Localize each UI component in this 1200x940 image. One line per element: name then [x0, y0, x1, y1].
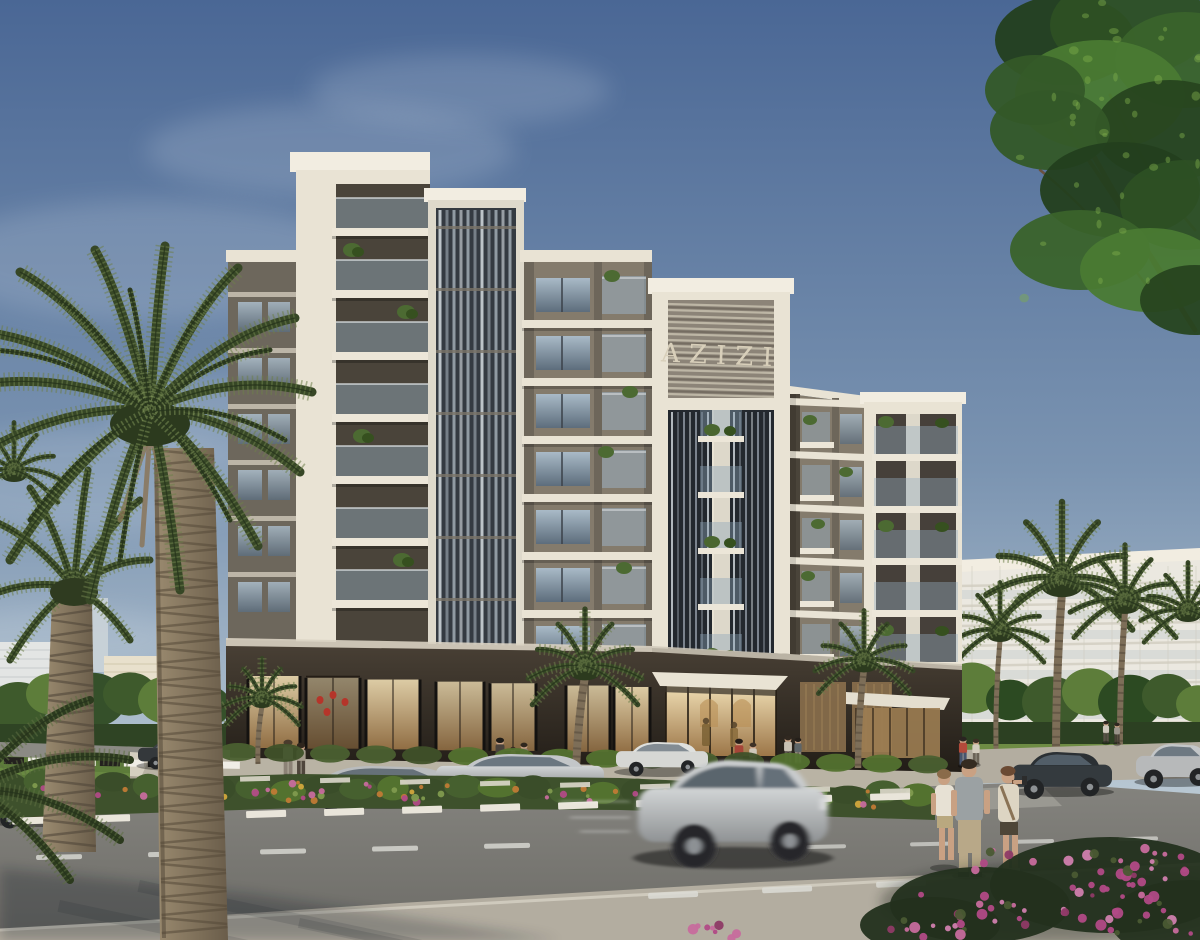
pedestrian-torso [955, 777, 983, 822]
arch-motif [700, 699, 718, 727]
leaf-highlight [1132, 111, 1137, 118]
pedestrian-torso [959, 743, 967, 753]
leaf-highlight [1040, 241, 1046, 245]
leaf-highlight [1149, 164, 1158, 171]
flower-dot [1000, 900, 1005, 905]
car-hub [685, 765, 690, 770]
bg-glass-row [958, 650, 1200, 659]
flower-dot [901, 917, 908, 924]
flower-dot [1163, 876, 1168, 881]
flower-dot [1138, 892, 1145, 899]
flower-dot [1149, 866, 1154, 871]
red-lantern [324, 708, 331, 716]
leaf-highlight [1158, 35, 1164, 40]
leaf-highlight [1112, 36, 1121, 43]
red-lantern [317, 696, 324, 704]
flower-dot [1088, 882, 1094, 888]
pedestrian-hair [1001, 766, 1016, 776]
flower-dot [1090, 893, 1094, 897]
flower-dot [1061, 908, 1069, 916]
lane-dash [806, 844, 846, 849]
curb-stone [880, 788, 910, 794]
flower-dot [1157, 901, 1162, 906]
flower-dot [1112, 908, 1119, 915]
balcony-plant [352, 247, 364, 257]
balcony-glass [700, 578, 742, 604]
cloud [310, 54, 610, 126]
window-pane [268, 582, 290, 612]
flower-dot [871, 804, 876, 809]
balcony-slab [872, 610, 962, 617]
curb-stone [400, 779, 430, 785]
building-logo-band: AZIZI [660, 338, 783, 373]
leaf-highlight [1179, 133, 1184, 138]
balcony-slab [872, 454, 962, 461]
car-hub [634, 766, 639, 771]
flower-dot [251, 789, 259, 797]
red-lantern [330, 691, 337, 699]
flower-dot [955, 929, 966, 940]
flower-dot [286, 797, 292, 803]
flower-dot [1029, 858, 1037, 866]
flower-dot [1070, 884, 1076, 890]
pedestrian-arm [931, 793, 936, 815]
balcony-plant [704, 424, 720, 436]
pedestrian-arm [984, 790, 990, 814]
flower-dot [986, 848, 995, 857]
balcony-slab [800, 495, 834, 501]
car-headlight [820, 798, 828, 810]
flower-dot [1180, 867, 1189, 876]
balcony-slab-shadow [332, 360, 432, 363]
flower-dot [548, 789, 553, 794]
flower-dot [560, 791, 567, 798]
balcony-slab [332, 476, 432, 484]
base-shrub [816, 754, 856, 772]
window-pane [840, 520, 862, 550]
balcony-glass [700, 466, 742, 492]
window-pane [238, 582, 262, 612]
balcony-glass [602, 508, 646, 546]
car-hub [1087, 784, 1093, 790]
flower-dot [971, 866, 979, 874]
base-shrub [310, 745, 350, 763]
balcony-slab-shadow [332, 422, 432, 425]
balcony-plant [811, 519, 825, 529]
balcony-slab-shadow [332, 608, 432, 611]
leaf-highlight [1085, 76, 1091, 84]
flower-dot [1118, 858, 1123, 863]
balcony-glass [336, 198, 428, 228]
leaf-highlight [1123, 152, 1130, 158]
leaf-highlight [1082, 13, 1089, 18]
curb-stone [480, 803, 520, 811]
flower-dot [710, 926, 715, 931]
base-shrub [402, 746, 442, 764]
curb-stone [246, 810, 286, 818]
flower-dot [265, 788, 270, 793]
flower-dot [368, 785, 372, 789]
fin-floor-break [436, 536, 516, 539]
balcony-glass [602, 334, 646, 372]
balcony-slab-shadow [332, 484, 432, 487]
curb-stone [560, 782, 590, 788]
fin-column-cap [424, 188, 526, 202]
storefront-glass [856, 708, 940, 758]
balcony-slab-shadow [332, 236, 432, 239]
base-shrub [862, 755, 902, 773]
balcony-glass [802, 465, 830, 497]
slab-line [228, 572, 296, 577]
pedestrian-hair [520, 743, 527, 748]
base-shrub [356, 745, 396, 763]
curb-stone [870, 793, 910, 801]
leaf-highlight [1163, 27, 1167, 32]
lane-dash [260, 848, 306, 854]
flower-dot [918, 892, 924, 898]
flower-dot [1063, 856, 1073, 866]
window-pane [840, 414, 862, 444]
slab-shadow [522, 502, 652, 505]
pedestrian-leg [939, 828, 945, 860]
balcony-slab [872, 558, 962, 565]
balcony-plant [598, 446, 614, 458]
pedestrian-hair [735, 739, 743, 744]
car-hub [686, 838, 702, 854]
curb-stone [402, 806, 442, 814]
balcony-plant [616, 562, 632, 574]
flower-dot [909, 922, 920, 933]
architectural-rendering: AZIZI [0, 0, 1200, 940]
window-pane [268, 526, 290, 556]
leaf-highlight [1146, 277, 1150, 284]
flower-dot [980, 859, 988, 867]
leaf-highlight [1052, 93, 1057, 102]
flower-dot [866, 789, 870, 793]
pedestrian-torso [784, 742, 792, 752]
flower-dot [1090, 849, 1099, 858]
flower-dot [1004, 850, 1013, 859]
window-pane [536, 278, 590, 312]
pedestrian-shadow [1102, 741, 1110, 745]
flower-dot [1161, 908, 1167, 914]
curb-stone [320, 777, 350, 783]
flower-dot [1071, 872, 1078, 879]
pedestrian-arm [951, 790, 957, 816]
leaf-highlight [1074, 182, 1079, 188]
flower-dot [421, 796, 425, 800]
leaf-highlight [1125, 98, 1131, 104]
median-shrub [827, 786, 869, 804]
flower-dot [512, 786, 519, 793]
flower-dot [122, 787, 127, 792]
flower-dot [860, 801, 867, 808]
flower-dot [319, 788, 325, 794]
leaf-highlight [1099, 129, 1109, 136]
flower-dot [301, 796, 306, 801]
flower-dot [1078, 914, 1087, 923]
window-pane [536, 336, 590, 370]
flower-dot [1004, 901, 1012, 909]
balcony-slab [698, 604, 744, 610]
corner-shade [790, 394, 796, 660]
slab-shadow [522, 444, 652, 447]
floor-slab [522, 436, 652, 444]
balcony-plant [801, 571, 815, 581]
pier-cap [290, 152, 430, 172]
flower-dot [688, 924, 699, 935]
window-pane [536, 394, 590, 428]
leaf-highlight [1154, 75, 1162, 84]
slab-shadow [522, 328, 652, 331]
car-hub [1030, 785, 1037, 792]
flower-dot [977, 909, 988, 920]
balcony-plant [935, 626, 949, 636]
stone-pier [832, 398, 839, 660]
pedestrian-legs [301, 761, 305, 776]
flower-dot [140, 792, 148, 800]
tower-cap [648, 278, 794, 294]
flower-dot [632, 791, 638, 797]
floor-slab [522, 378, 652, 386]
flower-dot [955, 909, 966, 920]
leaf-highlight [1113, 73, 1118, 82]
leaf-highlight [1070, 114, 1076, 121]
leaf-highlight [1120, 192, 1124, 199]
balcony-plant [406, 309, 418, 319]
fin-floor-break [436, 226, 516, 229]
balcony-glass [874, 582, 958, 610]
pedestrian-hair [937, 769, 951, 779]
balcony-slab [698, 548, 744, 554]
flower-dot [905, 927, 910, 932]
flower-dot [1178, 853, 1185, 860]
pedestrian-torso [972, 744, 979, 753]
balcony-glass [802, 624, 830, 656]
base-shrub [218, 743, 258, 761]
leaf-highlight [1109, 28, 1119, 34]
flower-dot [1148, 891, 1159, 902]
leaf-highlight [1076, 102, 1081, 110]
balcony-glass [874, 530, 958, 558]
leaf-highlight [1069, 46, 1079, 54]
flower-dot [988, 905, 995, 912]
leaf-highlight [1099, 97, 1104, 101]
flower-dot [411, 794, 419, 802]
balcony-plant [402, 557, 414, 567]
pedestrian-leg [948, 828, 954, 860]
flower-dot [308, 791, 315, 798]
balcony-plant [362, 433, 374, 443]
balcony-plant [724, 538, 736, 548]
flower-dot [1130, 861, 1140, 871]
curb-stone [480, 780, 510, 786]
flower-dot [1097, 868, 1104, 875]
rendering-canvas: AZIZI [0, 0, 1200, 940]
lane-dash [1014, 839, 1054, 844]
balcony-slab [332, 228, 432, 236]
pedestrian-hair [961, 759, 977, 769]
flower-dot [1188, 931, 1193, 936]
balcony-glass [874, 426, 958, 454]
balcony-slab [872, 506, 962, 513]
balcony-plant [604, 270, 620, 282]
pedestrian-hair [1114, 723, 1119, 727]
flower-dot [391, 787, 397, 793]
flower-dot [586, 794, 590, 798]
lobby-figure [703, 718, 709, 724]
fin-floor-break [436, 288, 516, 291]
flower-dot [298, 784, 304, 790]
balcony-plant [724, 426, 736, 436]
balcony-slab [332, 352, 432, 360]
flower-dot [409, 789, 414, 794]
building-right-face [790, 386, 966, 672]
balcony-slab [332, 600, 432, 608]
leaf-highlight [1112, 251, 1120, 255]
balcony-slab [332, 538, 432, 546]
motion-streak [560, 800, 630, 803]
azizi-logo-text: AZIZI [660, 338, 783, 373]
leaf-highlight [1083, 55, 1093, 62]
tower-sill [668, 402, 774, 410]
flower-dot [296, 781, 300, 785]
leaf-highlight [1195, 159, 1200, 169]
lobby-figure [731, 722, 737, 728]
pedestrian-torso [1114, 727, 1120, 735]
leaf-highlight [1098, 278, 1103, 285]
flower-dot [1140, 844, 1149, 853]
pedestrian-hair [795, 738, 802, 742]
flower-dot [1111, 857, 1117, 863]
floor-slab [522, 494, 652, 502]
floor-slab [522, 552, 652, 560]
flower-dot [1126, 882, 1131, 887]
flower-dot [1021, 920, 1030, 929]
window-pane [536, 510, 590, 544]
flower-dot [545, 795, 549, 799]
flower-dot [1105, 915, 1113, 923]
balcony-glass [602, 276, 646, 314]
window-pane [536, 452, 590, 486]
pedestrian-shadow [1113, 742, 1121, 746]
leaf-highlight [1119, 228, 1127, 234]
flower-dot [1131, 873, 1137, 879]
motion-streak [580, 830, 630, 833]
flower-dot [289, 780, 297, 788]
balcony-plant [935, 418, 949, 428]
balcony-glass [336, 260, 428, 290]
lobby-figure [702, 724, 710, 746]
flower-dot [992, 919, 997, 924]
floor-slab [522, 320, 652, 328]
balcony-glass [336, 570, 428, 600]
flower-dot [401, 795, 407, 801]
flower-dot [957, 920, 965, 928]
flower-dot [1108, 927, 1115, 934]
flower-dot [293, 791, 298, 796]
flower-dot [271, 788, 278, 795]
fin-floor-break [436, 412, 516, 415]
car-hub [783, 834, 797, 848]
balcony-slab [800, 548, 834, 554]
flower-dot [1137, 878, 1146, 887]
lane-dash [484, 843, 530, 849]
balcony-slab [332, 290, 432, 298]
base-shrub [264, 744, 304, 762]
pedestrian-hair [784, 736, 791, 741]
flower-dot [1152, 851, 1157, 856]
flower-dot [419, 785, 423, 789]
pedestrian-shorts [1000, 822, 1018, 835]
flower-dot [95, 792, 101, 798]
pedestrian-hair [959, 737, 966, 742]
pedestrian-legs [297, 761, 301, 776]
flower-dot [1137, 919, 1142, 924]
pedestrian-torso [1103, 725, 1109, 733]
pedestrian-hair [1103, 721, 1109, 725]
flower-dot [377, 791, 383, 797]
lane-dash [372, 846, 418, 852]
flower-dot [931, 923, 936, 928]
flower-dot [613, 789, 618, 794]
median-shrub [478, 778, 519, 798]
balcony-glass [336, 384, 428, 414]
slab-shadow [522, 560, 652, 563]
balcony-plant [803, 415, 817, 425]
balcony-slab [698, 492, 744, 498]
flower-dot [1162, 852, 1167, 857]
fin-floor-break [436, 474, 516, 477]
balcony-slab [800, 601, 834, 607]
flower-dot [945, 925, 951, 931]
balcony-glass [336, 322, 428, 352]
balcony-plant [935, 522, 949, 532]
flower-dot [445, 783, 450, 788]
leaf-highlight [1192, 91, 1200, 100]
median-shrub [444, 775, 482, 798]
balcony-slab [332, 414, 432, 422]
flower-dot [1120, 894, 1125, 899]
pedestrian-torso [794, 743, 801, 752]
flower-dot [1163, 919, 1173, 929]
pedestrian-legs [976, 753, 979, 764]
window-pane [238, 470, 262, 500]
leaf-highlight [1166, 157, 1171, 163]
car-hub [153, 761, 157, 765]
pedestrian-hair [750, 743, 757, 748]
parapet-band [520, 250, 652, 262]
pedestrian-pants [958, 820, 981, 853]
phone [1022, 776, 1027, 785]
flower-dot [714, 921, 723, 930]
balcony-plant [622, 386, 638, 398]
window-pane [536, 568, 590, 602]
balcony-glass [602, 392, 646, 430]
balcony-slab [800, 442, 834, 448]
leaf-highlight [1019, 294, 1028, 303]
flower-dot [976, 901, 983, 908]
car-body [616, 751, 708, 767]
pedestrian-hair [973, 739, 980, 743]
flower-dot [32, 783, 37, 788]
flower-dot [1017, 916, 1022, 921]
flower-dot [1095, 919, 1106, 930]
leaf-highlight [1016, 155, 1024, 161]
balcony-slab [698, 436, 744, 442]
curb-stone [240, 776, 270, 782]
flower-dot [980, 892, 989, 901]
